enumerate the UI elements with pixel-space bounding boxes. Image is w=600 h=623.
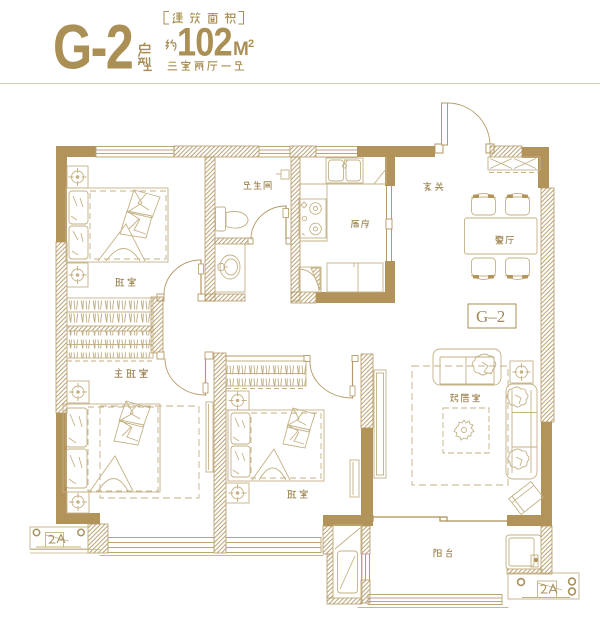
- svg-text:102: 102: [177, 19, 232, 64]
- svg-text:M: M: [233, 39, 249, 60]
- svg-text:2: 2: [248, 38, 254, 50]
- svg-text:G–2: G–2: [476, 307, 505, 326]
- svg-text:G-2: G-2: [53, 12, 132, 83]
